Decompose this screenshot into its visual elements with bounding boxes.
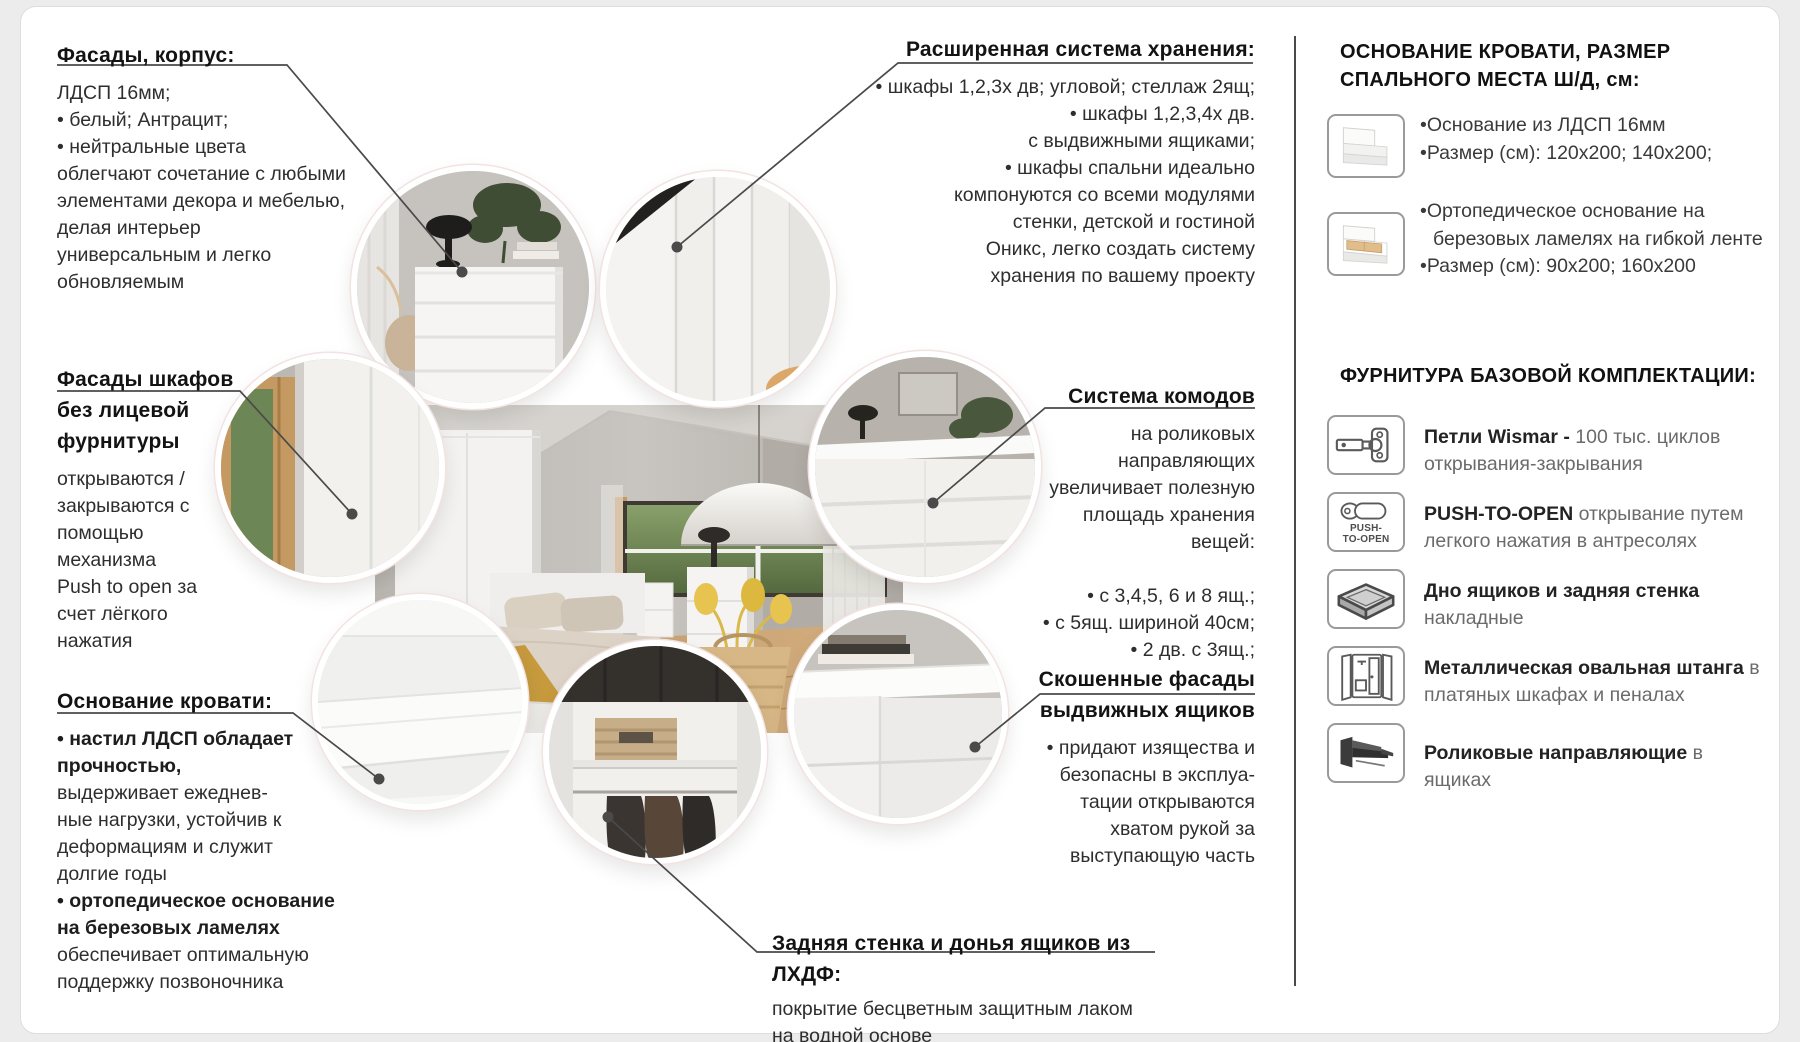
bed-row-text: •Ортопедическое основание на березовых л… [1420, 198, 1772, 281]
push-to-open-label: PUSH- TO-OPEN [1343, 523, 1390, 545]
callout-beveled-fronts: Скошенные фасады выдвижных ящиков • прид… [1005, 664, 1255, 870]
hardware-item-strong: Петли Wismar - [1424, 426, 1570, 448]
bed-row-text: •Основание из ЛДСП 16мм •Размер (см): 12… [1420, 112, 1772, 167]
wall-frame [899, 373, 957, 415]
hardware-item-strong: Роликовые направляющие [1424, 742, 1687, 764]
callout-body: • шкафы 1,2,3х дв; угловой; стеллаж 2ящ;… [875, 74, 1255, 290]
basket [595, 718, 677, 762]
detail-circle-dresser-top [809, 351, 1041, 583]
callout-body: покрытие бесцветным защитным лаком на во… [772, 996, 1192, 1042]
vertical-divider [1294, 36, 1296, 986]
callout-heading: Скошенные фасады выдвижных ящиков [1005, 664, 1255, 726]
callout-body: на роликовых направляющих увеличивает по… [1015, 421, 1255, 664]
drawer-bottom-icon [1327, 569, 1405, 629]
hardware-section-title: ФУРНИТУРА БАЗОВОЙ КОМПЛЕКТАЦИИ: [1340, 362, 1780, 390]
callout-body-strong: • настил ЛДСП обладает прочностью, [57, 726, 367, 780]
bed-bullet: •Размер (см): 120х200; 140х200; [1420, 140, 1772, 168]
callout-storage-system: Расширенная система хранения: • шкафы 1,… [875, 34, 1255, 290]
bed-bullet: •Размер (см): 90х200; 160х200 [1420, 253, 1772, 281]
bed-section-title: ОСНОВАНИЕ КРОВАТИ, РАЗМЕР СПАЛЬНОГО МЕСТ… [1340, 38, 1770, 94]
detail-circle-drawer-corner [788, 604, 1008, 824]
wardrobe-icon [1327, 646, 1405, 706]
callout-body: открываются / закрываются с помощью меха… [57, 466, 267, 655]
detail-circle-wardrobe-doors [600, 171, 836, 407]
callout-body-text: выдерживает ежеднев- ные нагрузки, устой… [57, 780, 367, 888]
callout-body: • придают изящества и безопасны в эксплу… [1005, 735, 1255, 870]
callout-heading: Фасады, корпус: [57, 40, 387, 71]
hardware-item-strong: PUSH-TO-OPEN [1424, 503, 1573, 525]
callout-body-text: обеспечивает оптимальную поддержку позво… [57, 942, 367, 996]
bed-flat-icon [1327, 114, 1405, 178]
callout-heading: Основание кровати: [57, 686, 367, 717]
callout-back-wall: Задняя стенка и донья ящиков из ЛХДФ: по… [772, 928, 1192, 1042]
callout-heading: Фасады шкафов без лицевой фурнитуры [57, 364, 267, 457]
roller-slides-icon [1327, 723, 1405, 783]
chest [415, 267, 563, 403]
shelf [573, 760, 737, 768]
callout-body: ЛДСП 16мм; • белый; Антрацит; • нейтраль… [57, 80, 387, 296]
hardware-item-strong: Дно ящиков и задняя стенка [1424, 580, 1699, 602]
books [818, 635, 914, 664]
callout-heading: Задняя стенка и донья ящиков из ЛХДФ: [772, 928, 1192, 990]
bed-bullet: •Ортопедическое основание на березовых л… [1420, 198, 1772, 253]
hardware-item-text: PUSH-TO-OPEN открывание путем легкого на… [1424, 501, 1770, 555]
hardware-item-text: Петли Wismar - 100 тыс. циклов открывани… [1424, 424, 1770, 478]
callout-fronts-no-hardware: Фасады шкафов без лицевой фурнитуры откр… [57, 364, 267, 655]
bed-bullet: •Основание из ЛДСП 16мм [1420, 112, 1772, 140]
furniture-infographic: Фасады, корпус: ЛДСП 16мм; • белый; Антр… [0, 0, 1800, 1042]
callout-dresser-system: Система комодов на роликовых направляющи… [1015, 381, 1255, 664]
callout-bed-base: Основание кровати: • настил ЛДСП обладае… [57, 686, 367, 996]
hardware-item-text: Роликовые направляющие в ящиках [1424, 740, 1770, 794]
callout-heading: Расширенная система хранения: [875, 34, 1255, 65]
hinge-icon [1327, 415, 1405, 475]
hardware-item-text: Дно ящиков и задняя стенка накладные [1424, 578, 1770, 632]
hardware-item-text: Металлическая овальная штанга в платяных… [1424, 655, 1770, 709]
push-to-open-icon: PUSH- TO-OPEN [1327, 492, 1405, 552]
callout-facades: Фасады, корпус: ЛДСП 16мм; • белый; Антр… [57, 40, 387, 296]
bed-slats-icon [1327, 212, 1405, 276]
callout-body-strong: • ортопедическое основание на березовых … [57, 888, 367, 942]
hardware-item-rest: накладные [1424, 607, 1524, 629]
callout-body: • настил ЛДСП обладает прочностью, выдер… [57, 726, 367, 996]
hardware-item-strong: Металлическая овальная штанга [1424, 657, 1744, 679]
detail-circle-wardrobe-inside [543, 640, 767, 864]
hanging-clothes [606, 796, 715, 858]
callout-heading: Система комодов [1015, 381, 1255, 412]
